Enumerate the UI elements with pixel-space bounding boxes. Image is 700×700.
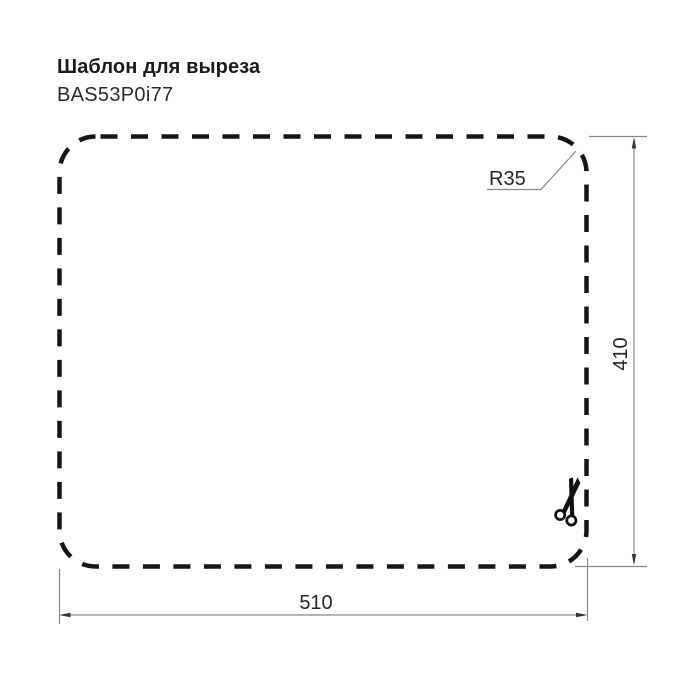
width-dim-label: 510 <box>299 592 332 614</box>
cutout-outline <box>60 137 587 567</box>
scissors-icon <box>554 475 583 526</box>
arrowhead-left <box>59 613 71 617</box>
cutout-drawing: R35 410 510 <box>0 0 700 700</box>
scissors-handle <box>555 510 566 521</box>
cutout-template-page: Шаблон для выреза BAS53P0i77 R35 410 510 <box>0 0 700 700</box>
arrowhead-right <box>576 613 588 617</box>
arrowhead-down <box>632 554 636 566</box>
height-dim-label: 410 <box>610 337 632 370</box>
arrowhead-up <box>632 137 636 149</box>
radius-dim-label: R35 <box>489 168 526 190</box>
scissors-handle <box>566 515 577 526</box>
